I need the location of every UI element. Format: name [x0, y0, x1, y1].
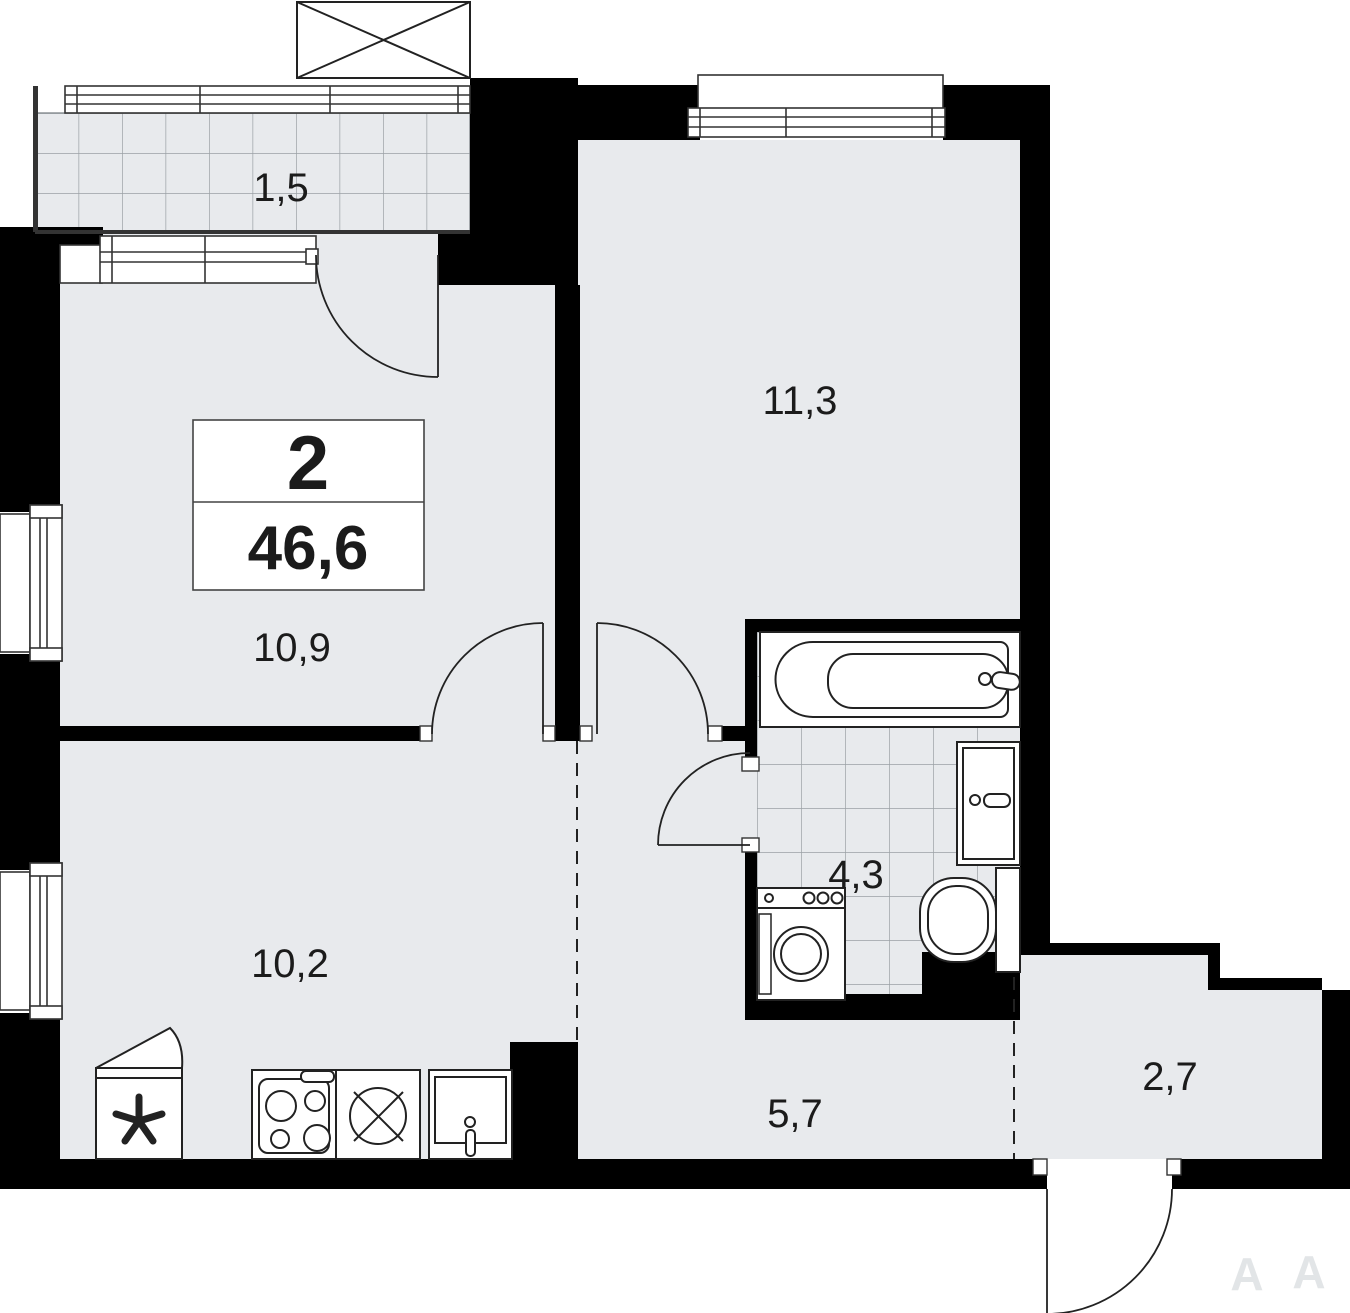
bathtub-tap-icon: [991, 671, 1021, 691]
stove-handle: [301, 1071, 334, 1082]
total-area: 46,6: [248, 514, 369, 583]
hallway-area-label: 5,7: [767, 1092, 823, 1136]
window-outer-sill: [0, 872, 30, 1010]
entrance-hall-area-label: 2,7: [1142, 1055, 1198, 1099]
bathtub: [760, 632, 1021, 727]
bedroom-floor-lower: [578, 619, 745, 741]
living-room-area-label: 10,9: [253, 626, 331, 670]
balcony-bottom-edge: [35, 230, 470, 234]
sink-tap-icon: [984, 794, 1010, 807]
shaft-crossed-box: [297, 2, 470, 78]
window-outer-sill: [0, 514, 30, 652]
wall-living-bedroom-divider: [555, 285, 580, 741]
wall-top-mid: [578, 85, 700, 140]
wall-right-bedroom: [1020, 140, 1050, 955]
balcony-left-wall: [33, 86, 38, 232]
entrance-hall-floor-right: [1208, 990, 1322, 1159]
floor-plan: 1,5 11,3 10,9 10,2 4,3 5,7 2,7 2 46,6 А …: [0, 0, 1350, 1313]
toilet-tank: [996, 868, 1020, 972]
rooms-count: 2: [287, 421, 329, 506]
wall-bottom-left: [0, 1159, 1047, 1189]
wall-bathroom-top: [745, 619, 1020, 632]
bedroom-area-label: 11,3: [763, 379, 838, 423]
living-room-left-window: [0, 505, 62, 661]
watermark-letter: А: [1230, 1248, 1263, 1300]
hob-crossed-circle: [336, 1070, 420, 1159]
balcony-area-label: 1,5: [253, 166, 309, 210]
entrance-door: [1047, 1189, 1172, 1313]
kitchen-left-window: [0, 863, 62, 1019]
kitchen-area-label: 10,2: [251, 942, 329, 986]
wall-bathroom-left-upper: [745, 632, 757, 760]
wall-window-band-right: [438, 230, 578, 285]
bedroom-window-sill: [698, 75, 943, 110]
wall-right-entrance: [1322, 990, 1350, 1189]
wall-central-right: [722, 726, 745, 741]
bathroom-area-label: 4,3: [828, 853, 884, 897]
bathtub-faucet-icon: [979, 673, 991, 685]
wall-top-ne: [943, 85, 1050, 140]
sink-faucet-icon: [970, 795, 980, 805]
watermark-letter: А: [1292, 1246, 1325, 1298]
stove: [252, 1070, 336, 1159]
info-box: 2 46,6: [193, 420, 424, 590]
wall-central-left: [60, 726, 420, 741]
wall-entrance-top: [1050, 943, 1220, 955]
wall-left-middle: [0, 654, 60, 870]
watermark: А А: [1230, 1246, 1325, 1300]
kitchen-sink: [429, 1070, 512, 1159]
balcony-window: [65, 86, 470, 113]
bathroom-sink: [957, 742, 1020, 865]
wall-kitchen-hall-stub: [510, 1042, 578, 1159]
toilet: [920, 868, 1020, 972]
bedroom-window: [688, 75, 945, 137]
wall-entrance-step-h: [1208, 978, 1322, 990]
window-sill-left: [60, 245, 102, 283]
wall-left-upper: [0, 268, 60, 512]
wall-balcony-right: [470, 78, 578, 237]
kitchen-sink-tap-icon: [466, 1130, 475, 1156]
washing-machine: [757, 888, 845, 1000]
